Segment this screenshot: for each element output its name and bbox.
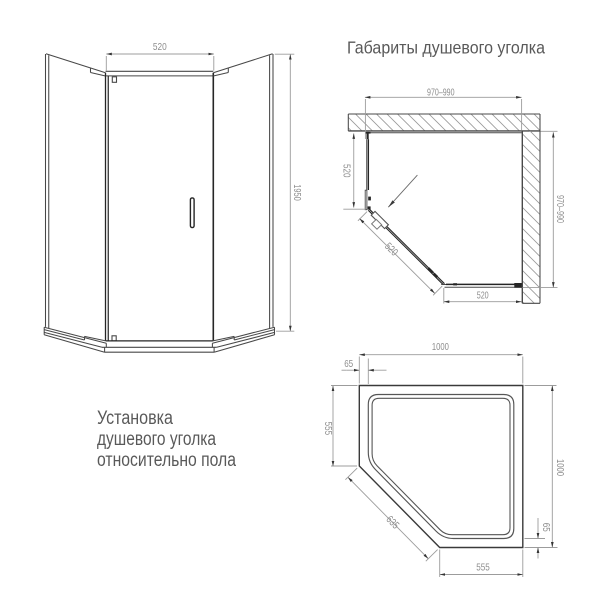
svg-text:970–990: 970–990	[554, 195, 566, 223]
svg-text:520: 520	[153, 41, 167, 53]
svg-text:относительно пола: относительно пола	[97, 450, 236, 471]
svg-text:Габариты душевого уголка: Габариты душевого уголка	[347, 38, 545, 58]
svg-text:65: 65	[344, 358, 353, 370]
svg-text:555: 555	[476, 561, 490, 573]
svg-text:65: 65	[540, 523, 552, 532]
svg-text:1000: 1000	[554, 459, 566, 476]
svg-text:970–990: 970–990	[427, 87, 455, 99]
svg-text:520: 520	[340, 164, 352, 178]
svg-text:555: 555	[322, 422, 334, 436]
svg-text:1950: 1950	[291, 184, 303, 201]
svg-text:душевого уголка: душевого уголка	[97, 429, 216, 450]
svg-text:Установка: Установка	[97, 408, 173, 429]
svg-text:520: 520	[477, 290, 489, 302]
svg-text:1000: 1000	[432, 341, 449, 353]
